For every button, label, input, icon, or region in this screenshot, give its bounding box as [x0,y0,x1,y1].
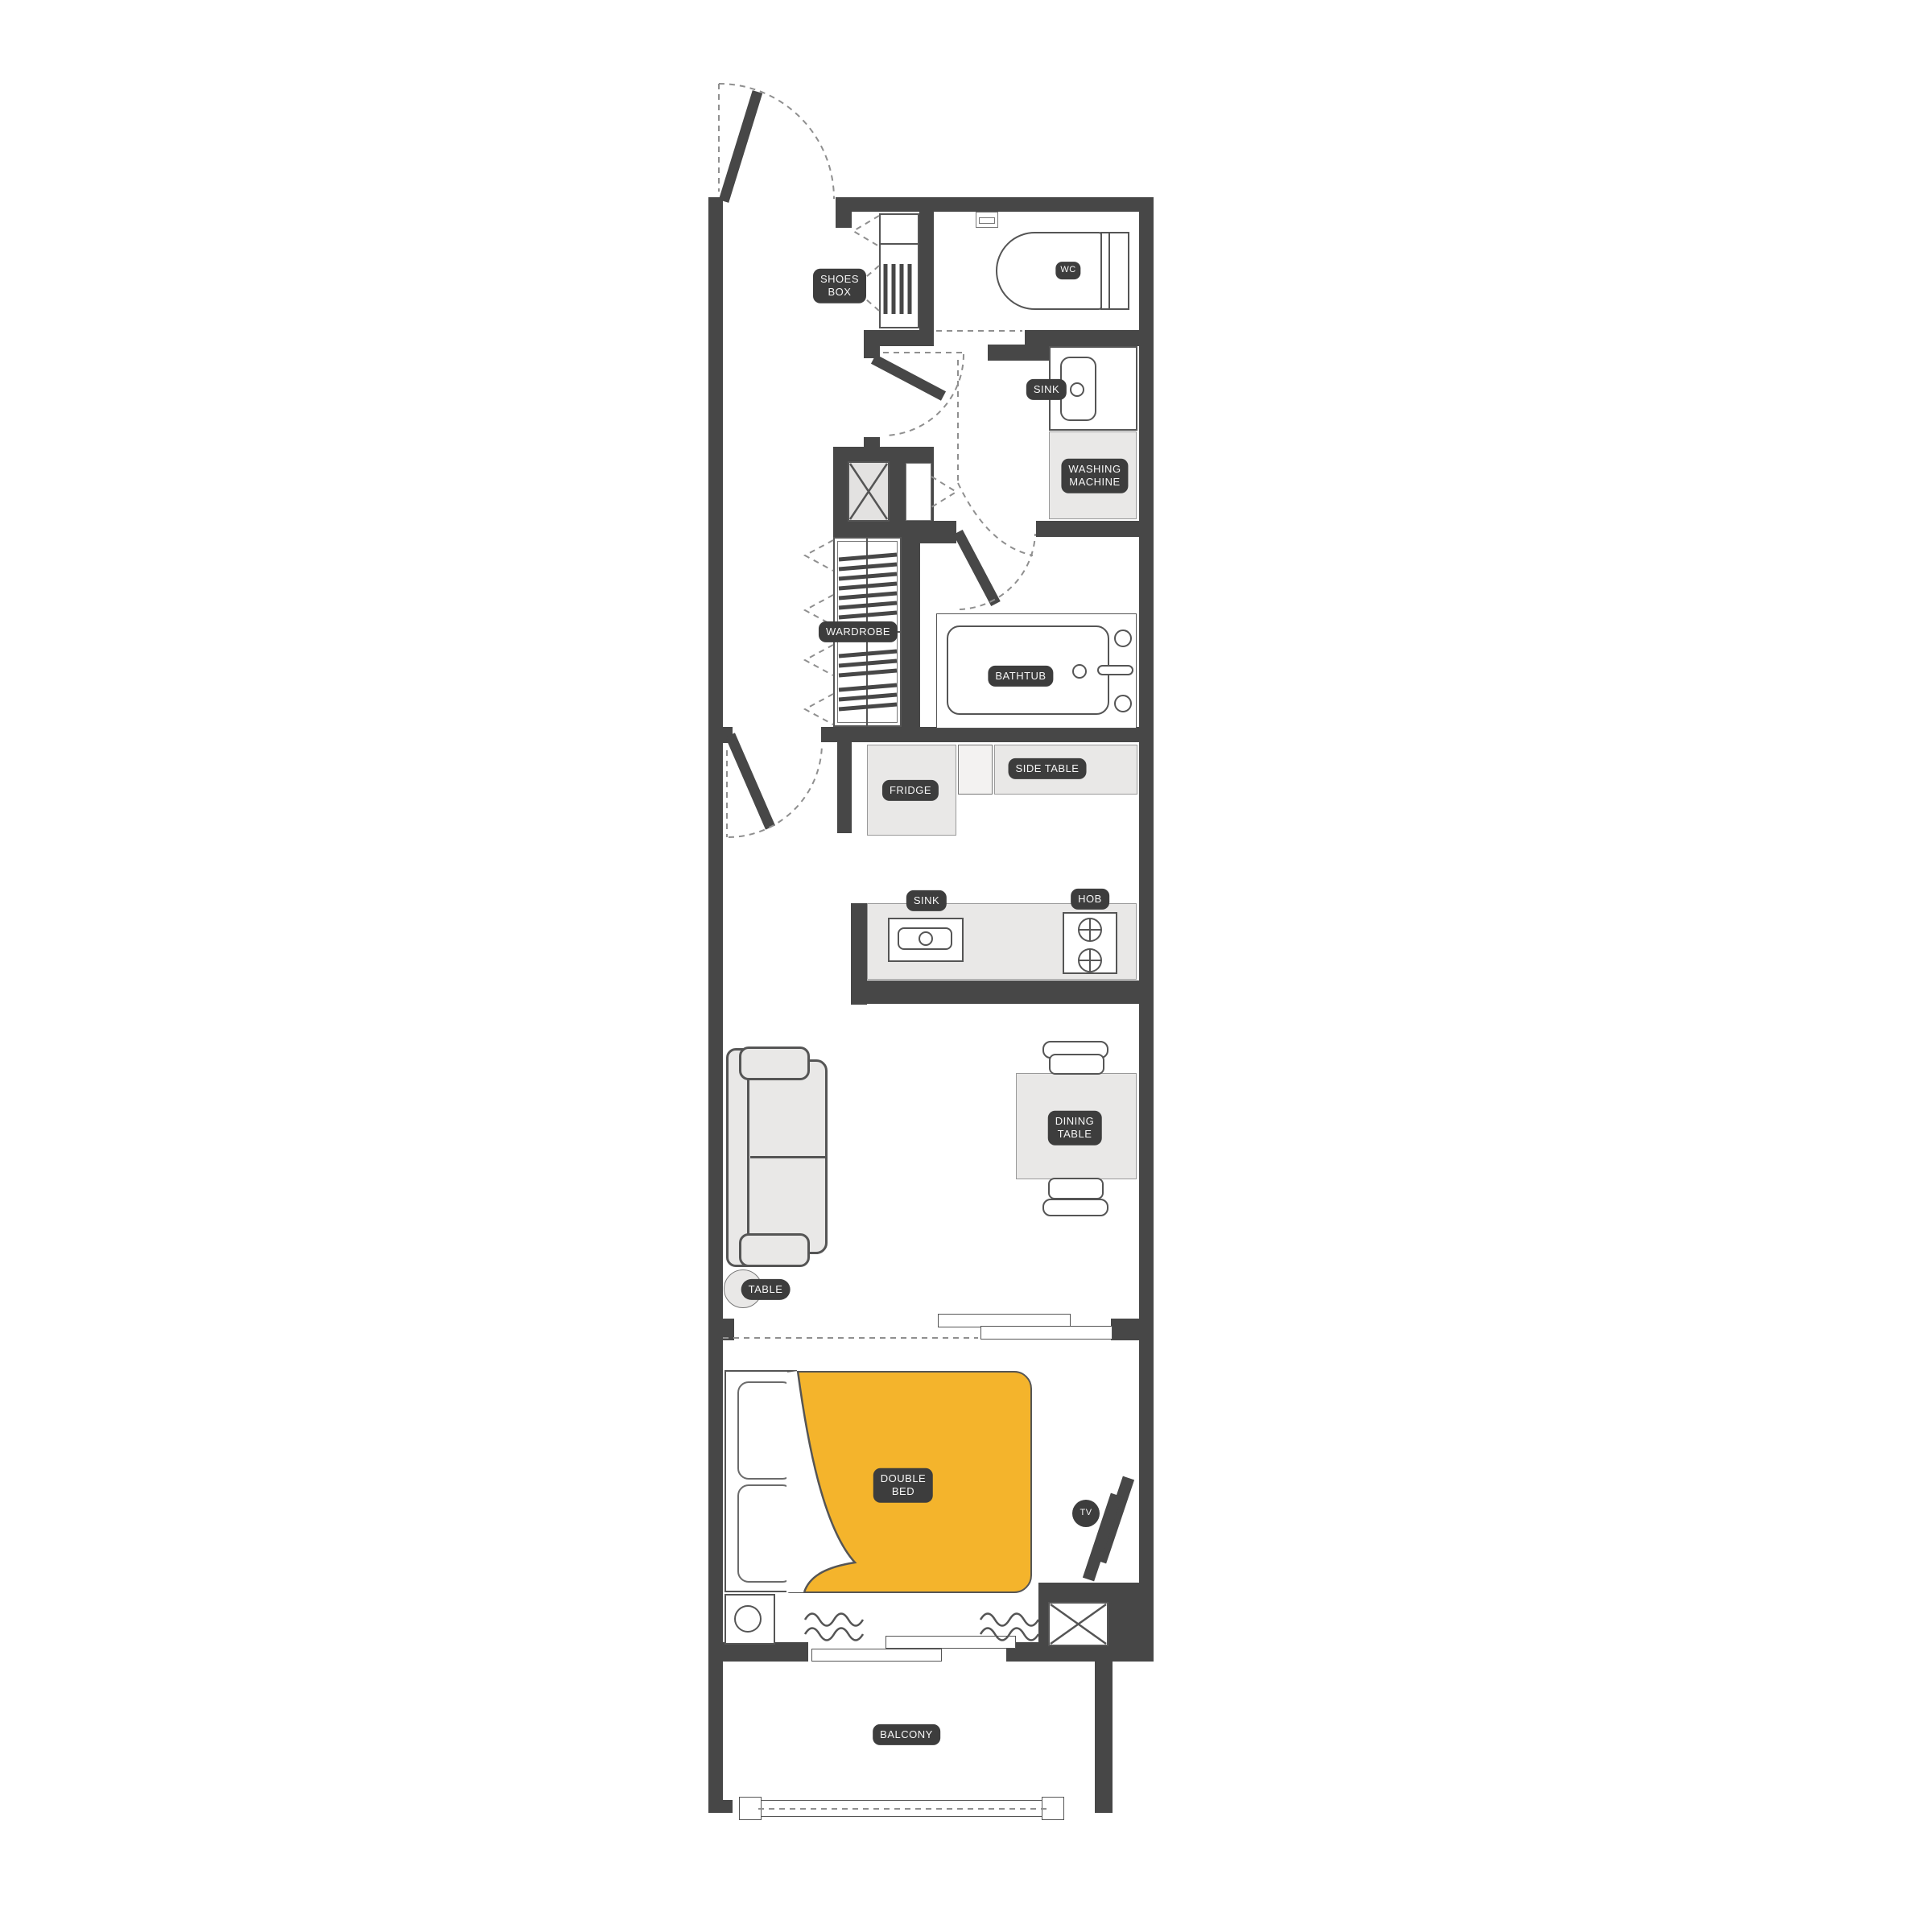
label-coffee-table: TABLE [741,1279,791,1300]
label-double-bed: DOUBLE BED [873,1468,933,1503]
floor-plan: SHOES BOX WC SINK WASHING MACHINE WARDRO… [0,0,1932,1932]
label-washing-machine-line2: MACHINE [1068,476,1121,489]
shaft-door-triangle [931,477,956,507]
living-door-leaf [730,735,770,828]
bathroom-door-leaf [958,532,996,604]
bed-sheet-fold [786,1371,855,1592]
wardrobe-triangle-4 [805,694,833,724]
lineart-overlay [0,0,1932,1932]
curtain-squiggle-right [980,1614,1038,1641]
label-wardrobe: WARDROBE [819,621,898,642]
shoes-box-slats [885,264,910,314]
label-dining-table-line1: DINING [1055,1115,1095,1128]
shoes-box-door-triangle-1 [853,216,879,246]
wardrobe-triangle-3 [805,645,833,675]
label-side-table: SIDE TABLE [1009,758,1087,779]
label-wc: WC [1055,262,1080,279]
label-washing-machine: WASHING MACHINE [1061,459,1128,493]
hall-door-leaf [873,359,943,396]
label-kitchen-sink: SINK [906,890,947,911]
entry-door-leaf [724,92,758,201]
entry-door-swing-arc [719,84,834,199]
ac-unit-cross [1051,1604,1106,1644]
label-tv: TV [1072,1500,1100,1527]
label-shoes-box: SHOES BOX [813,269,866,303]
wardrobe-slats-upper [839,555,897,617]
hob-burners [1079,919,1101,972]
label-double-bed-line1: DOUBLE [881,1472,926,1485]
label-dining-table: DINING TABLE [1048,1111,1102,1146]
label-shoes-box-line1: SHOES [820,273,859,286]
label-fridge: FRIDGE [882,780,939,801]
label-bath-sink: SINK [1026,379,1067,400]
label-shoes-box-line2: BOX [820,286,859,299]
label-double-bed-line2: BED [881,1485,926,1498]
label-dining-table-line2: TABLE [1055,1128,1095,1141]
curtain-squiggle-left [805,1614,863,1641]
shaft-duct-cross [850,464,887,519]
label-balcony: BALCONY [873,1724,940,1745]
label-bathtub: BATHTUB [988,666,1053,687]
label-hob: HOB [1071,889,1109,910]
wardrobe-slats-lower [839,651,897,709]
wardrobe-triangle-1 [805,540,833,571]
label-washing-machine-line1: WASHING [1068,463,1121,476]
